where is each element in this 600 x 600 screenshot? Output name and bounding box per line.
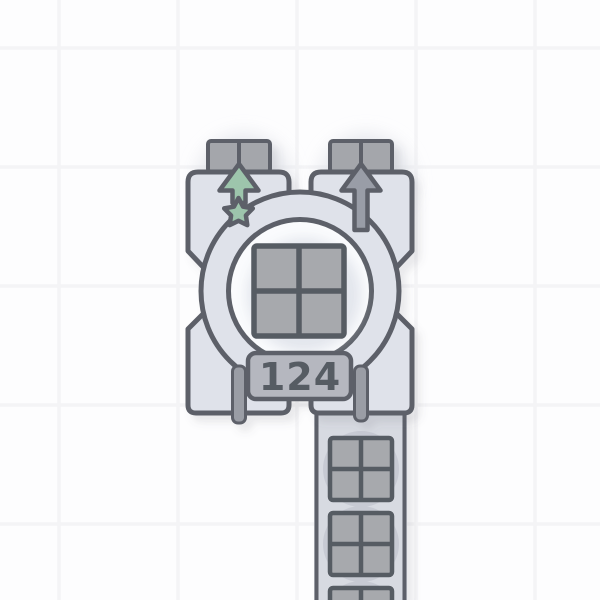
support-leg-right (355, 366, 368, 421)
conveyor-belt[interactable] (314, 406, 407, 600)
belt-item-square (330, 513, 392, 575)
resource-shape-square (254, 246, 344, 336)
belt-item-square (330, 588, 392, 600)
counter-value: 124 (259, 355, 341, 399)
game-viewport: 124 (0, 0, 600, 600)
support-leg-left (233, 366, 246, 423)
game-canvas[interactable]: 124 (0, 0, 600, 600)
belt-item-square (330, 438, 392, 500)
